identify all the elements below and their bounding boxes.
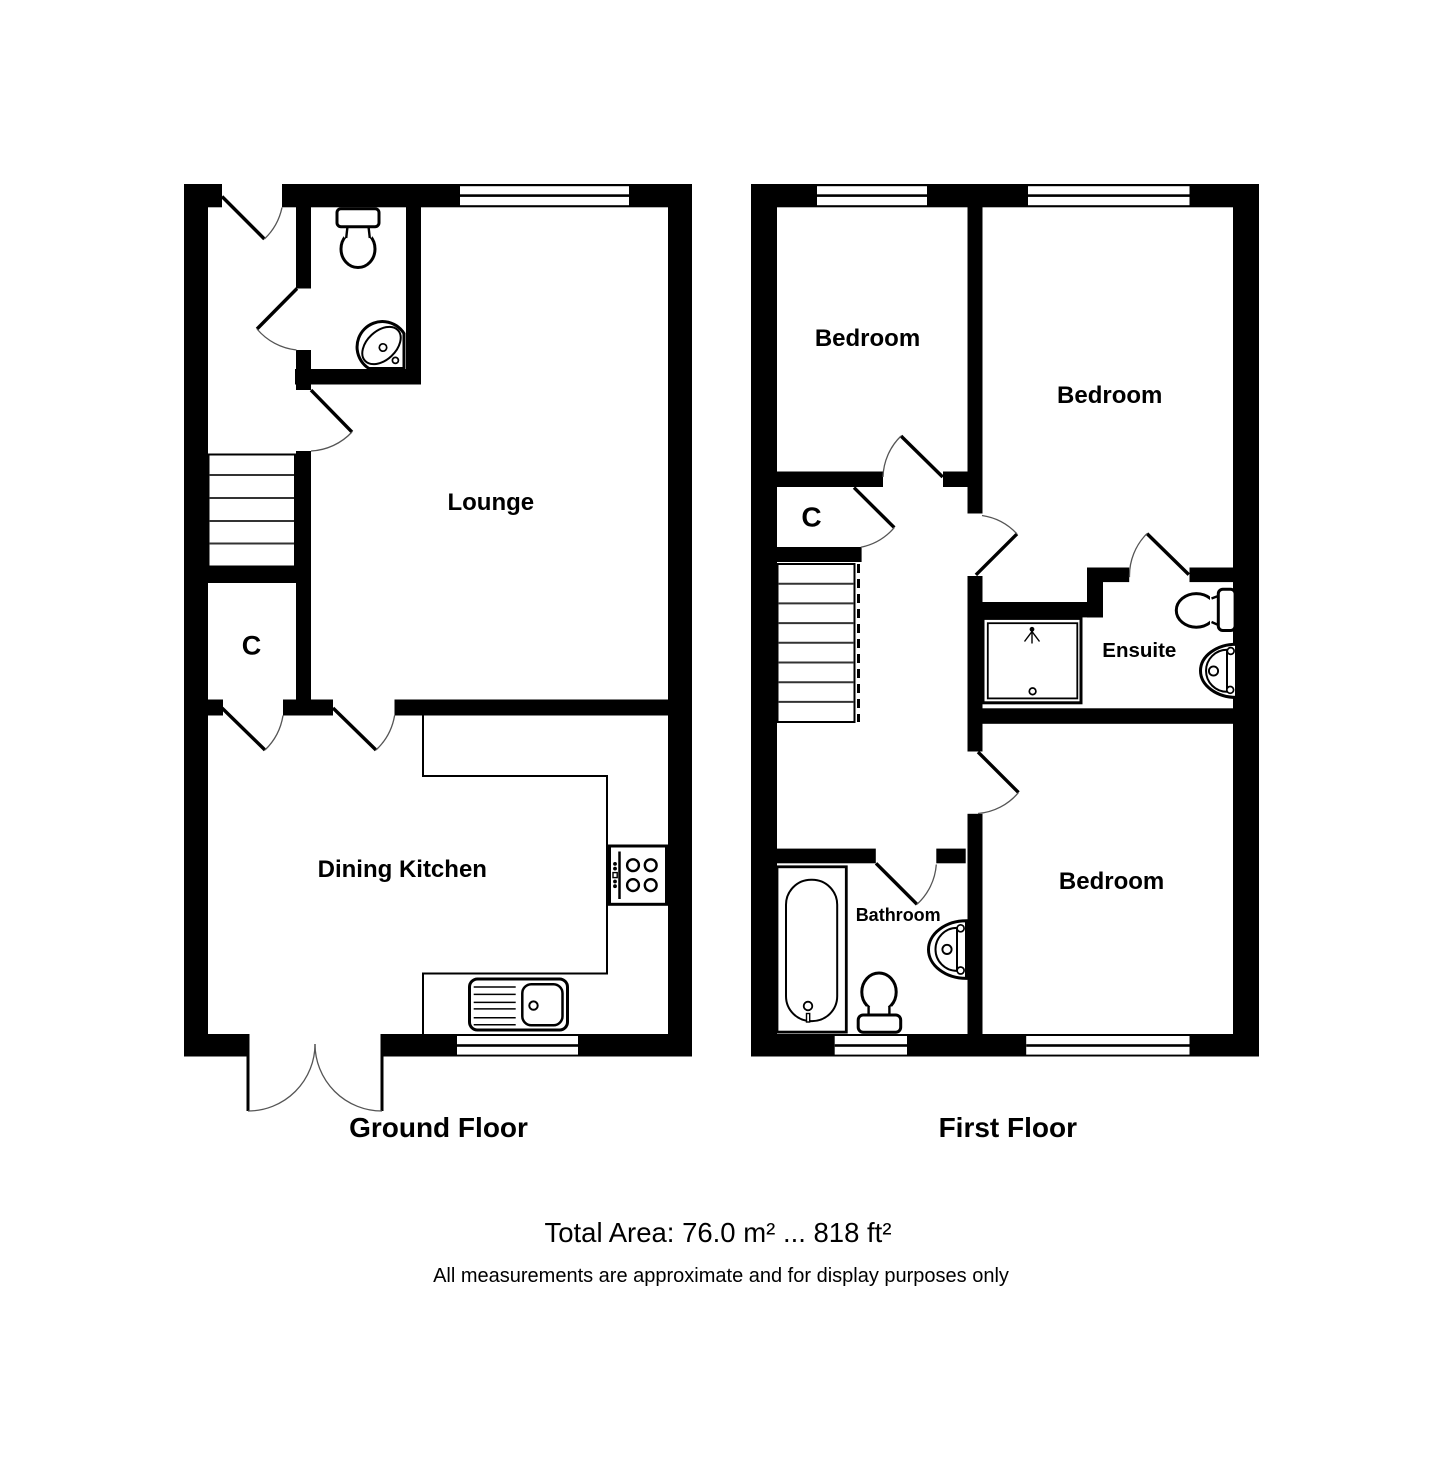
svg-text:Ensuite: Ensuite — [1102, 639, 1176, 662]
svg-text:Bedroom: Bedroom — [1057, 382, 1162, 409]
svg-text:Bedroom: Bedroom — [1059, 868, 1164, 895]
svg-text:C: C — [801, 502, 821, 533]
svg-text:Dining Kitchen: Dining Kitchen — [318, 856, 487, 883]
svg-text:Bedroom: Bedroom — [815, 325, 920, 352]
svg-text:Ground Floor: Ground Floor — [349, 1112, 528, 1143]
svg-text:C: C — [242, 631, 262, 661]
svg-text:Lounge: Lounge — [447, 489, 534, 516]
svg-text:Total Area: 76.0 m² ... 818 ft: Total Area: 76.0 m² ... 818 ft² — [545, 1217, 892, 1248]
svg-text:First Floor: First Floor — [939, 1112, 1078, 1143]
svg-text:Bathroom: Bathroom — [856, 905, 941, 925]
svg-text:All measurements are approxima: All measurements are approximate and for… — [433, 1265, 1009, 1287]
